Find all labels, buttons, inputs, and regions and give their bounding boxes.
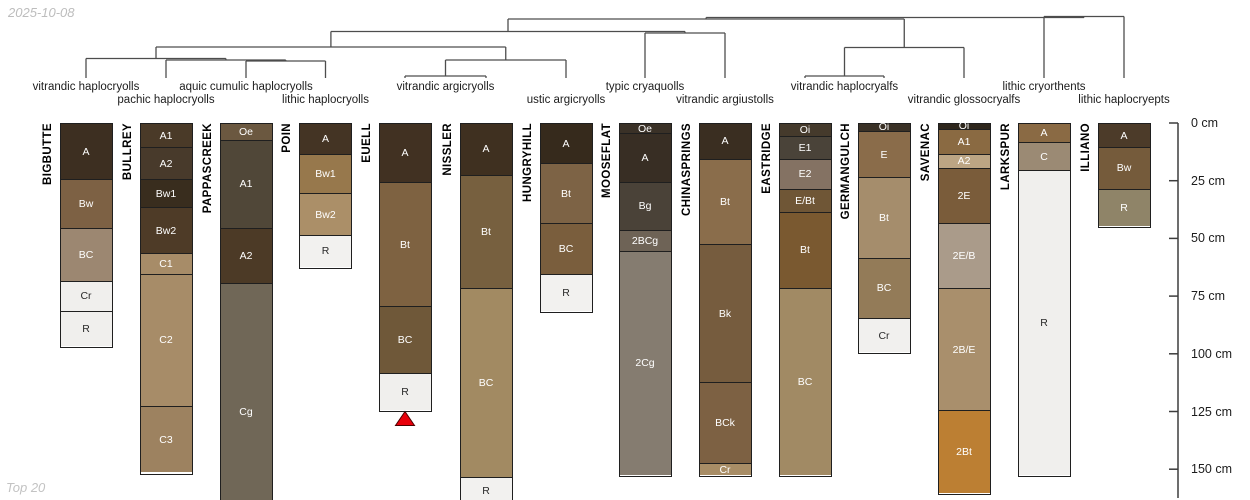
depth-axis [0, 0, 1250, 500]
depth-tick-label: 100 cm [1191, 347, 1232, 361]
depth-tick-label: 0 cm [1191, 116, 1218, 130]
figure-canvas: 2025-10-08 vitrandic haplocryollspachic … [0, 0, 1250, 500]
depth-tick-label: 150 cm [1191, 462, 1232, 476]
depth-tick-label: 75 cm [1191, 289, 1225, 303]
depth-tick-label: 25 cm [1191, 174, 1225, 188]
depth-tick-label: 125 cm [1191, 405, 1232, 419]
footer-label: Top 20 [6, 480, 45, 495]
depth-tick-label: 50 cm [1191, 231, 1225, 245]
